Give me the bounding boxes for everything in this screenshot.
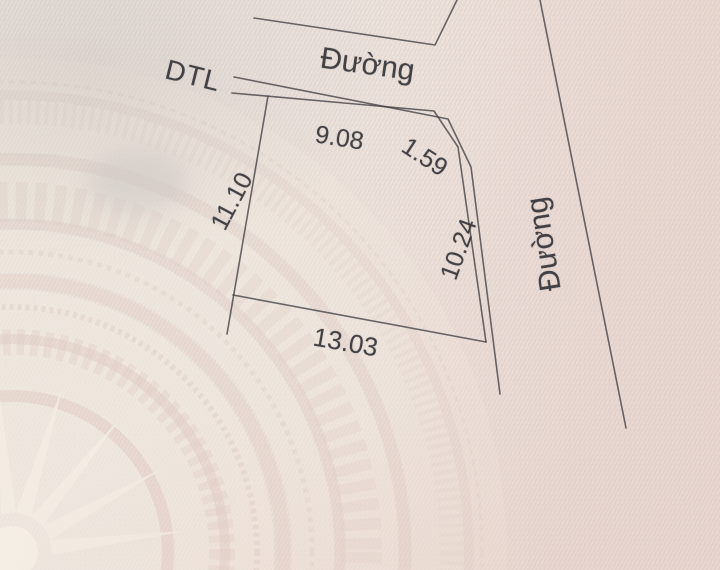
boundary-lines-svg — [0, 0, 720, 570]
road-top-upper-edge-line — [254, 0, 457, 45]
